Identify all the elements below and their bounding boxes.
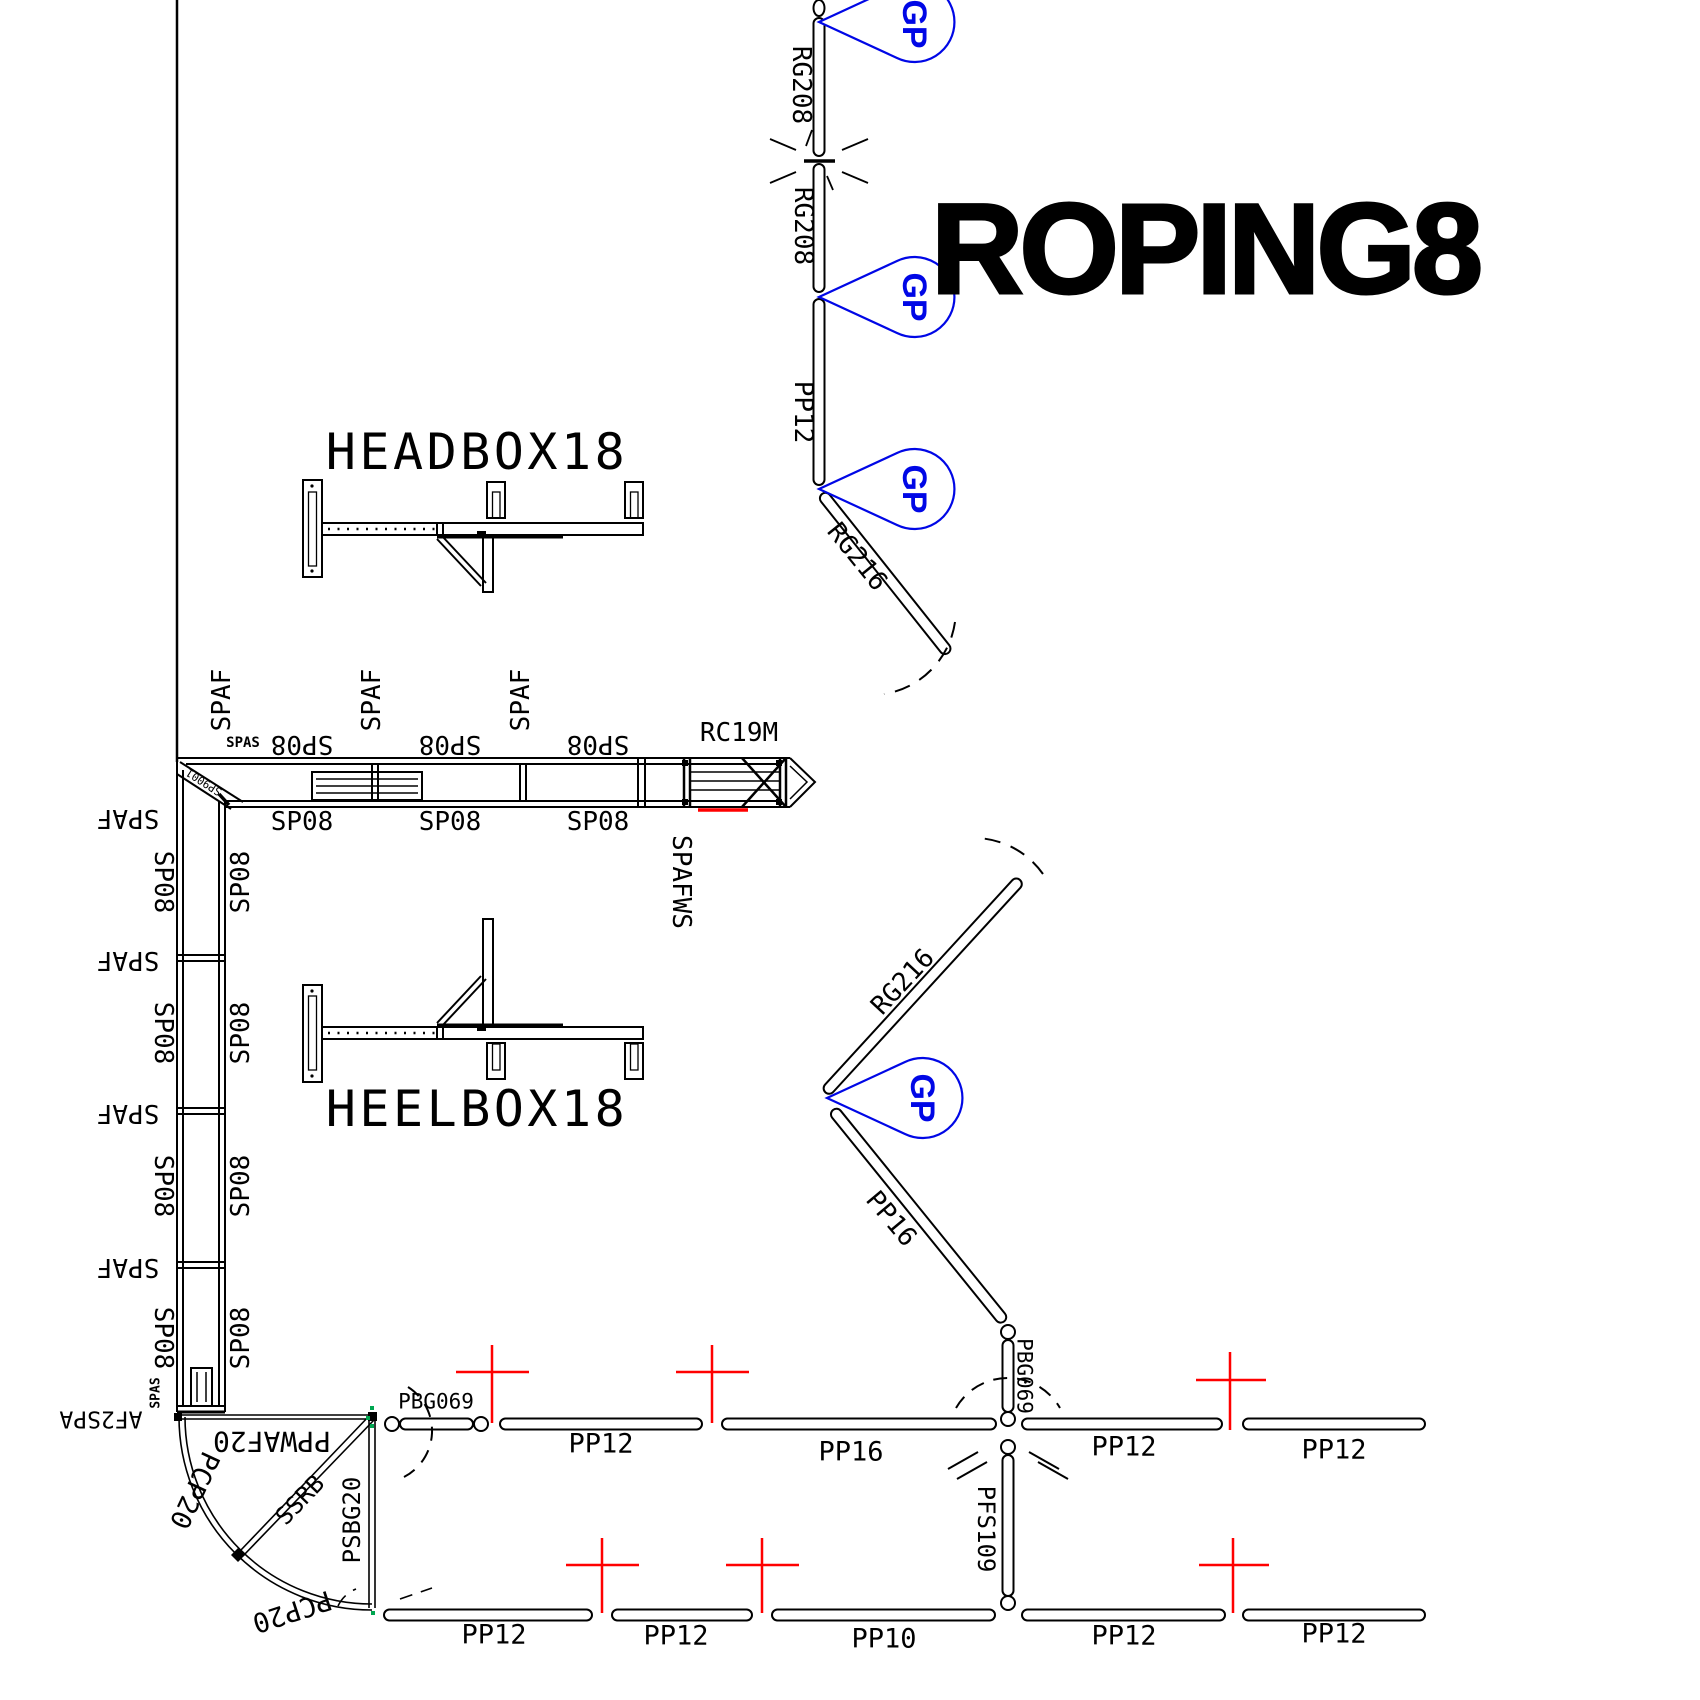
headbox-label: HEADBOX18 (326, 427, 628, 477)
corner-post-label: PSBG20 (340, 1477, 364, 1564)
row-lower-label: PP12 (643, 1623, 708, 1650)
panel-chain[interactable] (770, 0, 868, 485)
alley-h-top-label: SP08 (271, 731, 334, 757)
alley-h-bottom-label: SP08 (271, 809, 334, 835)
column-upper-label: PBG069 (1014, 1338, 1035, 1414)
alley-v-right-label: SP08 (228, 851, 254, 914)
heelbox-label: HEELBOX18 (326, 1084, 628, 1134)
panel-label-pp12-chain: PP12 (790, 381, 816, 444)
alley-h-post-label: SPAF (209, 669, 235, 732)
alley-vertical[interactable] (177, 762, 225, 1412)
heelbox-structure[interactable] (303, 919, 643, 1082)
row-upper-label: PP16 (818, 1439, 883, 1466)
gate-swing-arc (400, 1588, 432, 1599)
gp-label-3: GP (897, 464, 931, 513)
headbox-structure[interactable] (303, 480, 643, 592)
panel-row-upper[interactable] (385, 1387, 1425, 1477)
alley-v-end-tag: AF2SPA (59, 1407, 142, 1430)
alley-v-left-label: SP08 (150, 1307, 176, 1370)
alley-v-post-label: SPAF (97, 1100, 160, 1126)
chute-label: RC19M (700, 720, 778, 746)
row-lower-label: PP12 (1301, 1621, 1366, 1648)
alley-h-post-label: SPAF (359, 669, 385, 732)
alley-h-post-label: SPAF (508, 669, 534, 732)
row-lower-label: PP12 (1091, 1623, 1156, 1650)
alley-h-small-tag: SPAS (226, 736, 260, 750)
alley-v-right-label: SP08 (228, 1002, 254, 1065)
panel-row-lower[interactable] (384, 1610, 1425, 1621)
row-upper-label: PBG069 (398, 1392, 474, 1413)
gp-label-1: GP (897, 0, 931, 49)
column-lower-label: PFS109 (974, 1486, 998, 1573)
connector-dot-green (370, 1424, 374, 1428)
gate-position-crosses (456, 1345, 1269, 1613)
alley-h-top-label: SP08 (419, 731, 482, 757)
row-lower-label: PP10 (851, 1626, 916, 1653)
gp-label-2: GP (897, 272, 931, 321)
corner-gate-label: PPWAF20 (213, 1427, 331, 1455)
connector-dot-green (371, 1611, 375, 1615)
alley-h-top-label: SP08 (567, 731, 630, 757)
alley-horizontal[interactable] (177, 758, 650, 809)
alley-v-post-label: SPAF (97, 947, 160, 973)
alley-v-post-label: SPAF (97, 1254, 160, 1280)
chute-rc19m[interactable] (645, 758, 815, 810)
alley-v-post-label: SPAF (97, 805, 160, 831)
row-upper-label: PP12 (1301, 1437, 1366, 1464)
panel-label-rg208-1: RG208 (788, 46, 814, 124)
row-upper-label: PP12 (1091, 1434, 1156, 1461)
alley-v-right-label: SP08 (228, 1155, 254, 1218)
gate-swing-arc (884, 622, 955, 694)
chute-wing-label: SPAFWS (668, 835, 694, 929)
alley-h-bottom-label: SP08 (419, 809, 482, 835)
diagonal-panels[interactable] (818, 491, 1043, 1325)
panel-label-rg208-2: RG208 (790, 187, 816, 265)
alley-v-small-tag: SPAS (150, 1377, 163, 1408)
center-column[interactable] (948, 1325, 1068, 1610)
gp-label-4: GP (905, 1073, 939, 1122)
connector-dot-green (366, 1416, 370, 1420)
row-upper-label: PP12 (568, 1431, 633, 1458)
cad-drawing-roping8: ROPING8 HEADBOX18 HEELBOX18 RC19M SPAFWS… (0, 0, 1700, 1700)
gate-swing-arc (977, 838, 1043, 874)
alley-v-left-label: SP08 (150, 1155, 176, 1218)
row-lower-label: PP12 (461, 1622, 526, 1649)
drawing-title: ROPING8 (931, 186, 1479, 314)
gp-marker-1 (819, 0, 954, 62)
alley-v-left-label: SP08 (150, 1002, 176, 1065)
alley-v-right-label: SP08 (228, 1307, 254, 1370)
alley-h-bottom-label: SP08 (567, 809, 630, 835)
connector-dot-green (370, 1406, 374, 1410)
alley-v-left-label: SP08 (150, 851, 176, 914)
